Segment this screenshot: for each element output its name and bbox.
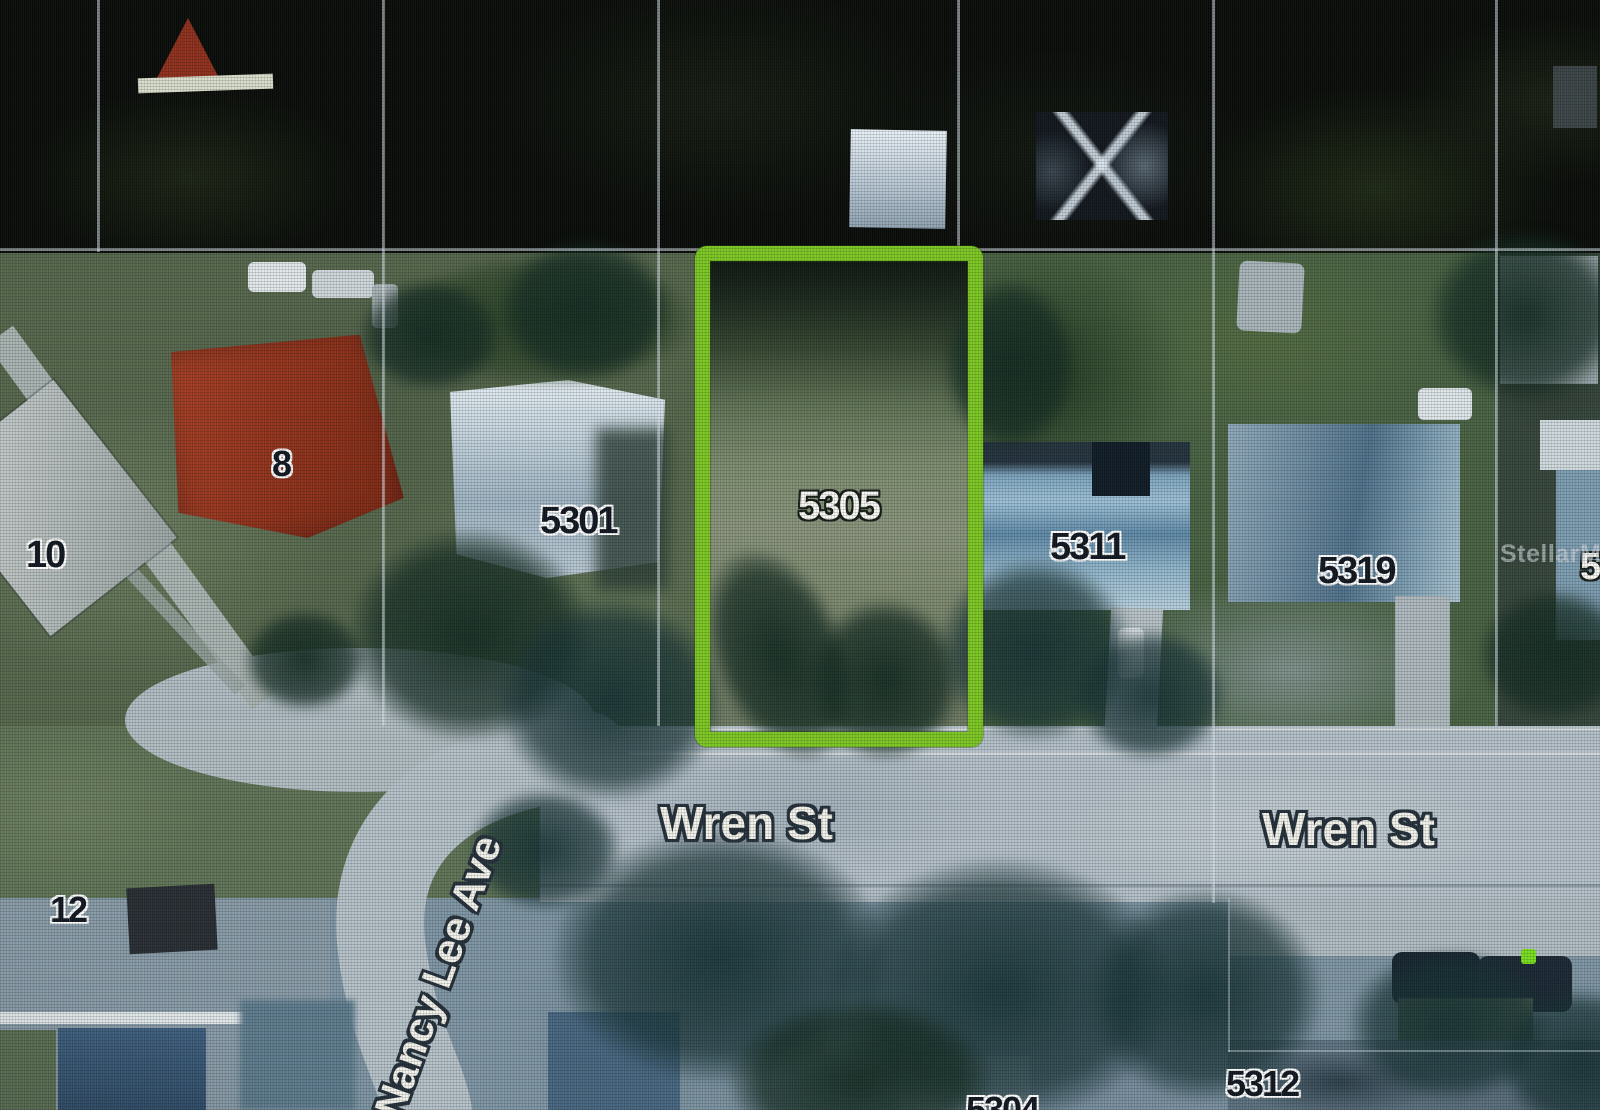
bright-green-dot	[1521, 949, 1536, 964]
tree-canopy	[245, 610, 365, 710]
tree-canopy	[360, 280, 500, 390]
shed-5319	[1236, 260, 1305, 333]
street-label-wren-st-right: Wren St	[1262, 806, 1435, 852]
white-car-5319	[1418, 388, 1472, 420]
tree-canopy	[1075, 630, 1225, 760]
parcel-line-vertical	[1212, 0, 1215, 903]
parcel-label-5311: 5311	[1050, 528, 1124, 566]
parcel-label-5319: 5319	[1318, 552, 1395, 590]
parcel-line-vertical	[1495, 0, 1498, 726]
inner-curve-ground	[240, 1000, 355, 1110]
parcel-label-8: 8	[272, 446, 290, 482]
tree-canopy	[500, 240, 670, 380]
parcel-label-5312-partial: 5312	[1226, 1066, 1298, 1102]
parcel-label-10: 10	[26, 536, 64, 574]
grey-roof-house-top	[849, 129, 947, 229]
x-gable-roof-house	[1036, 112, 1168, 220]
house-5311-entry-shadow	[1092, 442, 1150, 496]
stellar-mls-watermark: StellarMLS	[1500, 540, 1600, 569]
parcel-line-vertical	[97, 0, 100, 252]
tree-canopy	[500, 600, 720, 800]
lawn-sliver-south-left	[0, 1030, 56, 1110]
parcel-label-5301: 5301	[540, 502, 617, 540]
edge-white-patch	[1540, 420, 1600, 470]
street-label-wren-st-left: Wren St	[660, 800, 833, 846]
parcel-label-12: 12	[50, 892, 86, 928]
faint-structure-top-right	[1553, 66, 1597, 128]
dark-roof-12	[126, 884, 217, 955]
parked-car	[248, 262, 306, 292]
parcel-line-vertical	[382, 0, 385, 726]
house-5319-driveway	[1395, 596, 1450, 726]
parcel-label-5305: 5305	[798, 486, 879, 526]
parcel-line-vertical	[657, 0, 660, 726]
parcel-line-vertical	[957, 0, 960, 250]
parked-car	[312, 270, 374, 298]
red-roof-peak	[156, 18, 220, 80]
blue-roof-south-left	[58, 1028, 206, 1110]
parcel-label-5304-partial: 5304	[966, 1092, 1038, 1110]
mls-aerial-parcel-map: 8 10 12 5301 5305 5311 5319 5304 5312 5 …	[0, 0, 1600, 1110]
parcel-line-vertical	[1228, 898, 1230, 1052]
parcel-line-horizontal	[1228, 1050, 1600, 1052]
